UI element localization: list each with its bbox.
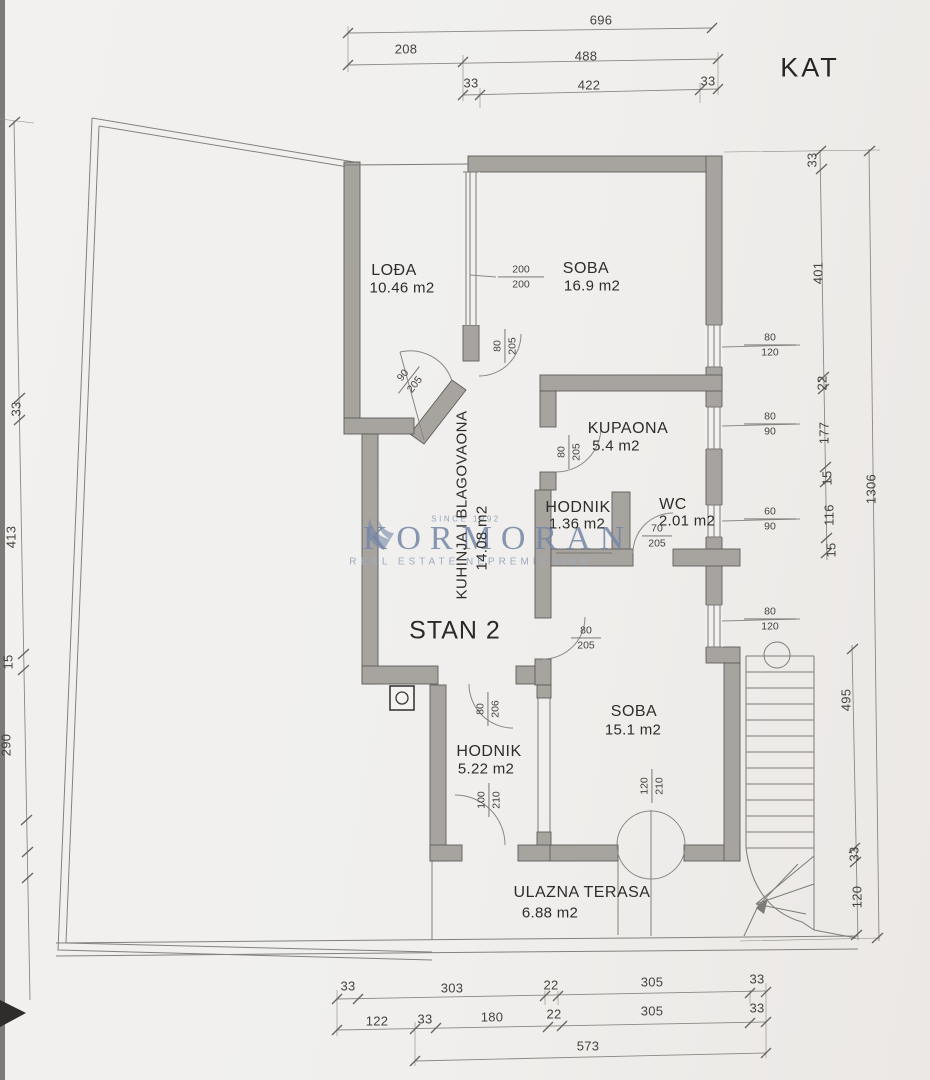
dim-top-696: 696 <box>590 13 613 28</box>
dim-left-413: 413 <box>4 526 19 549</box>
dim-right-33b: 33 <box>847 846 862 861</box>
scanned-floor-plan-page: KAT SINCE 1992 KORMORAN REAL ESTATE NEPR… <box>0 0 930 1080</box>
dim-right-1306: 1306 <box>864 474 879 504</box>
staircase <box>744 642 856 938</box>
dim-top-33b: 33 <box>700 74 715 89</box>
door-note-80-205-c: 80205 <box>571 624 601 651</box>
dim-bottom-r2-122: 122 <box>366 1014 389 1029</box>
door-note-120-210: 120210 <box>638 769 665 803</box>
unit-label-stan2: STAN 2 <box>409 617 501 646</box>
room-area-soba1: 16.9 m2 <box>564 278 620 295</box>
room-area-loda: 10.46 m2 <box>370 280 435 297</box>
room-area-kupaona: 5.4 m2 <box>592 438 640 455</box>
room-label-soba1: SOBA <box>563 260 609 278</box>
dim-bottom-r1-22: 22 <box>543 978 558 993</box>
door-note-100-210: 100210 <box>475 783 502 817</box>
dim-right-22: 22 <box>815 375 830 390</box>
room-area-hodnik1: 1.36 m2 <box>549 516 605 533</box>
dim-right-177: 177 <box>817 422 832 445</box>
dim-top-488: 488 <box>575 49 598 64</box>
dim-bottom-r1-303: 303 <box>441 981 464 996</box>
room-area-kuhinja: 14.08 m2 <box>474 506 491 571</box>
dim-right-120: 120 <box>850 886 865 909</box>
dim-top-422: 422 <box>578 78 601 93</box>
room-label-soba2: SOBA <box>611 703 657 721</box>
dim-bottom-r1-305: 305 <box>641 975 664 990</box>
windows <box>462 172 723 647</box>
window-note-80-90: 8090 <box>744 410 796 437</box>
window-note-200-200: 200200 <box>498 263 544 290</box>
window-note-80-120-a: 80120 <box>744 331 796 358</box>
room-area-hodnik2: 5.22 m2 <box>458 761 514 778</box>
door-note-80-206: 80206 <box>474 692 501 726</box>
scan-artifact <box>0 1000 26 1027</box>
window-note-80-120-b: 80120 <box>744 605 796 632</box>
dim-left-290: 290 <box>0 734 14 757</box>
door-note-70-205: 70205 <box>642 522 672 549</box>
room-label-hodnik2: HODNIK <box>456 743 521 761</box>
room-label-terasa: ULAZNA TERASA <box>514 884 651 902</box>
room-label-kupaona: KUPAONA <box>588 420 669 438</box>
room-area-terasa: 6.88 m2 <box>522 905 578 922</box>
dim-bottom-r2-33a: 33 <box>417 1012 432 1027</box>
room-area-soba2: 15.1 m2 <box>605 722 661 739</box>
page-title: KAT <box>780 53 840 84</box>
door-note-80-205-a: 80205 <box>491 329 518 363</box>
dim-bottom-r1-33b: 33 <box>749 972 764 987</box>
dim-right-495: 495 <box>839 689 854 712</box>
dim-left-15: 15 <box>1 654 16 669</box>
dim-left-33: 33 <box>9 401 24 416</box>
dim-top-33a: 33 <box>463 76 478 91</box>
dim-right-33a: 33 <box>805 152 820 167</box>
dim-right-401: 401 <box>811 262 826 285</box>
dim-bottom-r2-305: 305 <box>641 1004 664 1019</box>
dim-top-208: 208 <box>395 42 418 57</box>
dim-right-116: 116 <box>822 504 837 526</box>
window-note-60-90: 6090 <box>744 505 796 532</box>
dim-bottom-r2-22: 22 <box>546 1007 561 1022</box>
stair-circle <box>764 642 790 668</box>
vent-box-icon <box>390 686 414 710</box>
dim-bottom-r2-33b: 33 <box>749 1001 764 1016</box>
room-label-kuhinja: KUHINJA I BLAGOVAONA <box>454 411 471 600</box>
dim-bottom-r1-33a: 33 <box>340 979 355 994</box>
room-label-hodnik1: HODNIK <box>545 499 610 517</box>
door-note-80-205-b: 80205 <box>555 435 582 469</box>
dim-bottom-r2-180: 180 <box>481 1010 504 1025</box>
dim-bottom-r3-573: 573 <box>577 1039 600 1054</box>
dim-right-15a: 15 <box>820 470 835 485</box>
room-label-wc: WC <box>659 496 687 514</box>
partition-wall <box>538 698 550 832</box>
room-label-loda: LOĐA <box>371 262 417 280</box>
dim-right-15b: 15 <box>824 542 839 557</box>
